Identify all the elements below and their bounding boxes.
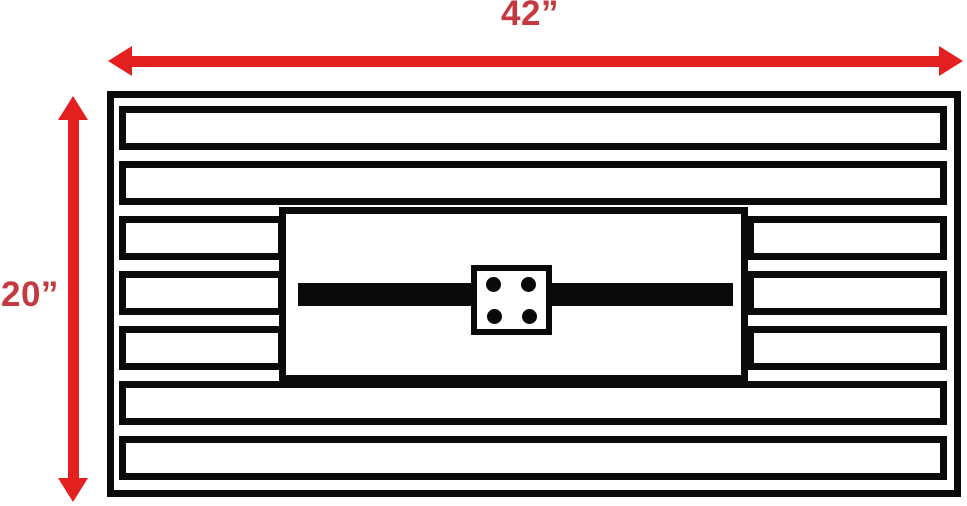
table-slat-row3-left xyxy=(119,216,285,260)
table-slat-row2 xyxy=(119,161,947,205)
igniter-dot-icon xyxy=(521,277,536,292)
table-slat-row5-right xyxy=(747,326,947,370)
igniter-dot-icon xyxy=(487,309,502,324)
height-dimension-arrow-icon xyxy=(58,96,88,502)
arrow-shaft xyxy=(125,56,946,67)
table-slat-row4-right xyxy=(747,271,947,315)
height-dimension-label: 20” xyxy=(1,277,57,314)
igniter-dot-icon xyxy=(486,277,501,292)
table-slat-row5-left xyxy=(119,326,285,370)
arrow-shaft xyxy=(68,113,79,485)
arrow-down-head-icon xyxy=(58,478,88,502)
igniter-box xyxy=(471,265,552,335)
width-dimension-label: 42” xyxy=(450,0,610,33)
table-slat-row1 xyxy=(119,106,947,150)
fire-pit-table-top-dimension-diagram: 42” 20” xyxy=(0,0,967,506)
igniter-dot-icon xyxy=(522,309,537,324)
table-slat-row3-right xyxy=(747,216,947,260)
width-dimension-arrow-icon xyxy=(108,46,963,76)
table-slat-row6 xyxy=(119,381,947,425)
arrow-right-head-icon xyxy=(939,46,963,76)
table-slat-row4-left xyxy=(119,271,285,315)
burner-panel xyxy=(279,207,748,382)
table-slat-row7 xyxy=(119,436,947,480)
